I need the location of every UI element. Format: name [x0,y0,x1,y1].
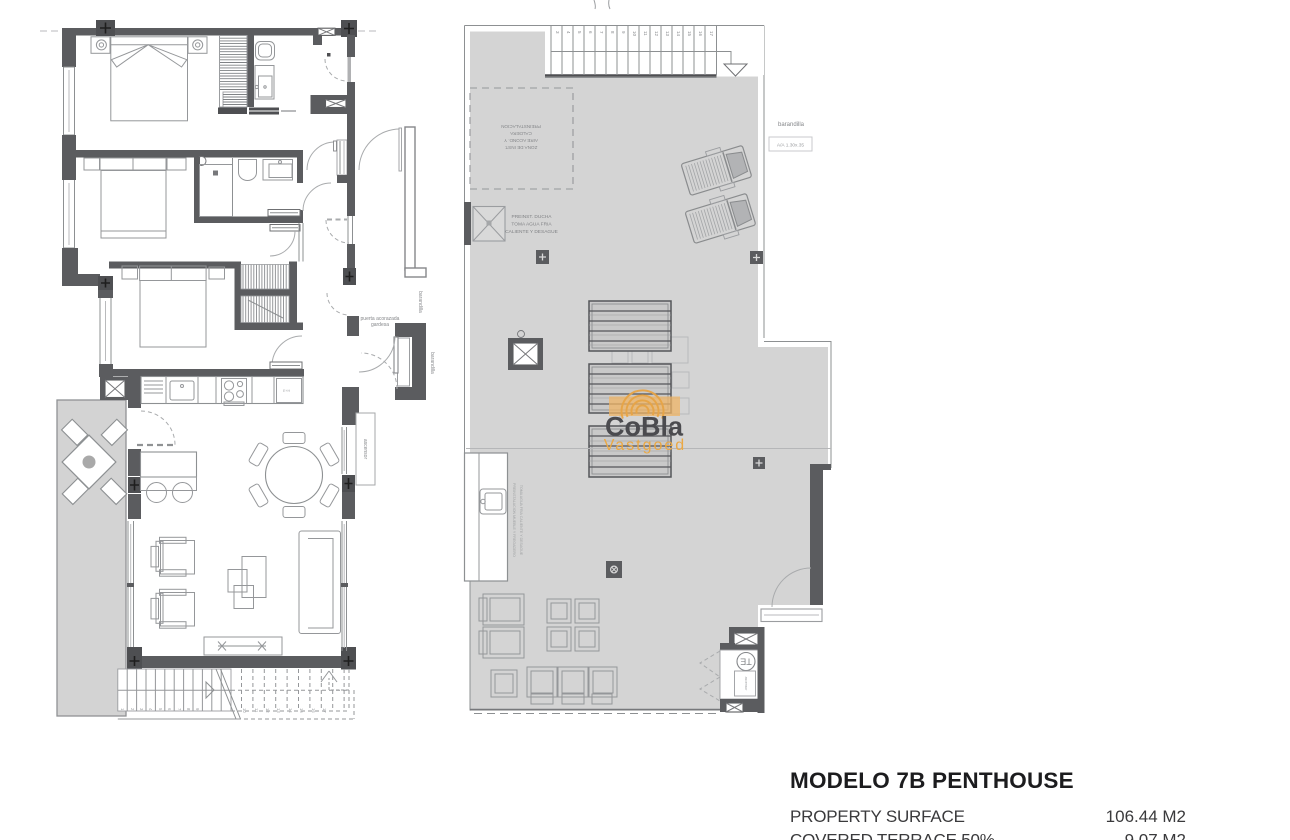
svg-text:barandilla: barandilla [778,122,805,128]
svg-text:15: 15 [299,708,304,713]
svg-text:14: 14 [288,708,293,713]
svg-text:16: 16 [311,708,316,713]
svg-text:PREINST. DUCHA: PREINST. DUCHA [512,214,553,220]
svg-text:CALIENTE Y DESAGUE: CALIENTE Y DESAGUE [505,229,558,235]
svg-text:12: 12 [265,708,270,713]
svg-text:barandilla: barandilla [417,291,423,313]
svg-text:Vastgoed: Vastgoed [604,437,686,454]
svg-text:PREINSTALACION: PREINSTALACION [501,124,541,129]
svg-text:E+H: E+H [283,389,290,393]
svg-text:barandilla: barandilla [429,352,435,374]
svg-text:MODELO 7B PENTHOUSE: MODELO 7B PENTHOUSE [790,768,1074,793]
svg-text:ZONA DE INST.: ZONA DE INST. [505,145,538,150]
svg-text:TOMA AGUA FRIA CALIENTE Y DESA: TOMA AGUA FRIA CALIENTE Y DESAGUE [519,485,523,556]
svg-text:TOMA AGUA FRIA: TOMA AGUA FRIA [511,222,552,228]
svg-text:ascensor: ascensor [362,439,368,460]
svg-text:A/A 1.30x.35: A/A 1.30x.35 [777,143,805,149]
svg-text:16: 16 [698,31,703,37]
svg-text:17: 17 [709,31,714,37]
svg-text:ascensor: ascensor [744,677,748,692]
svg-text:gardesa: gardesa [371,322,389,328]
svg-text:15: 15 [687,31,692,37]
svg-text:CALDERA: CALDERA [509,131,532,136]
svg-text:17: 17 [322,708,327,713]
svg-text:PREINSTALACION MUEBLE Y FREGAD: PREINSTALACION MUEBLE Y FREGADERO [512,483,516,557]
svg-text:12: 12 [654,31,659,37]
svg-text:10: 10 [632,31,637,37]
svg-text:PROPERTY SURFACE: PROPERTY SURFACE [790,807,965,826]
svg-text:11: 11 [643,31,648,36]
svg-text:14: 14 [676,31,681,37]
svg-text:106.44 M2: 106.44 M2 [1106,807,1186,826]
svg-text:13: 13 [665,31,670,37]
svg-text:COVERED TERRACE 50%: COVERED TERRACE 50% [790,831,995,840]
svg-text:9.07 M2: 9.07 M2 [1125,831,1186,840]
svg-text:TE: TE [740,657,752,667]
svg-text:11: 11 [254,708,259,713]
svg-text:AIRE ACOND. Y: AIRE ACOND. Y [504,138,538,143]
svg-text:13: 13 [276,708,281,713]
svg-text:10: 10 [242,708,247,713]
